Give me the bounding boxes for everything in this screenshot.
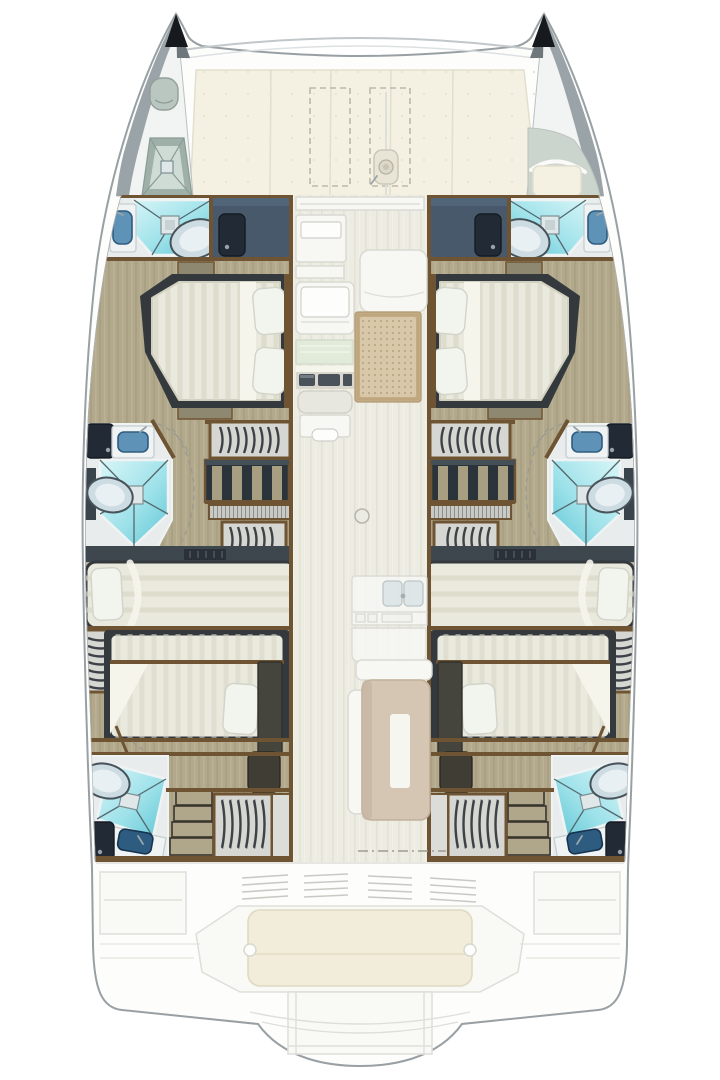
bench-knob-left	[244, 944, 256, 956]
forward-shelf	[296, 266, 344, 278]
galley-faucet	[401, 594, 406, 599]
starboard-bow-cushion	[533, 166, 581, 196]
instrument-display-2	[318, 374, 340, 386]
galley-bench	[352, 628, 426, 662]
helm-instrument-console	[296, 372, 354, 389]
drawer-handle	[312, 429, 338, 441]
galley	[352, 576, 427, 662]
cockpit-bench-cushion	[248, 910, 472, 986]
dining-table-shade	[362, 680, 372, 820]
mast-post	[355, 509, 369, 523]
starboard-hull-interior	[422, 194, 642, 862]
starboard-cockpit-locker	[534, 872, 620, 934]
swim-steps	[288, 992, 432, 1054]
galley-sink-right	[404, 581, 423, 606]
boat-plan-svg	[0, 0, 720, 1080]
catamaran-floor-plan	[0, 0, 720, 1080]
lounge-seat	[360, 250, 427, 312]
helm-seat	[298, 391, 352, 413]
instrument-glare	[300, 375, 314, 378]
windlass-drum-center	[383, 164, 389, 170]
bench-knob-right	[464, 944, 476, 956]
port-hull-interior	[78, 194, 298, 862]
saloon	[293, 195, 446, 862]
cabinet-slot	[301, 222, 341, 238]
sunpad-tufting	[190, 70, 538, 200]
console-strip	[296, 366, 353, 372]
port-hatch-center	[161, 161, 173, 173]
dining-seat-forward	[356, 660, 432, 680]
port-anchor-locker-lid	[150, 78, 178, 110]
starboard-bow	[527, 14, 604, 196]
saloon-lounge-rug	[355, 312, 421, 402]
chart-table-top	[301, 287, 349, 317]
port-bow-hatch	[142, 138, 192, 196]
galley-sink-left	[383, 581, 402, 606]
instrument-display-3	[343, 374, 352, 386]
port-bow	[116, 14, 193, 196]
forward-crossbeam	[182, 38, 538, 50]
rug-dot-grid	[360, 317, 416, 397]
dining-table-leaf	[390, 714, 410, 788]
port-cockpit-locker	[100, 872, 186, 934]
galley-dish-rack	[356, 614, 412, 622]
